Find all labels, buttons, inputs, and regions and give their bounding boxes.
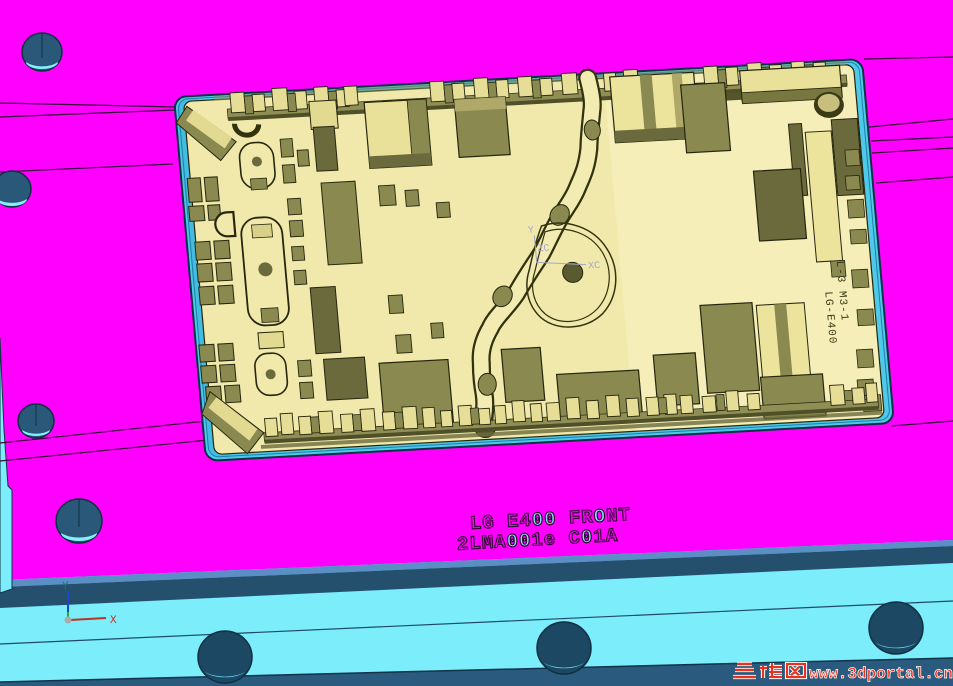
svg-text:ZC: ZC [537,244,550,256]
svg-text:Y: Y [527,225,534,236]
svg-text:Y: Y [62,581,69,593]
svg-text:www.3dportal.cn: www.3dportal.cn [809,665,953,683]
svg-text:XC: XC [588,261,601,273]
svg-text:X: X [110,615,117,627]
